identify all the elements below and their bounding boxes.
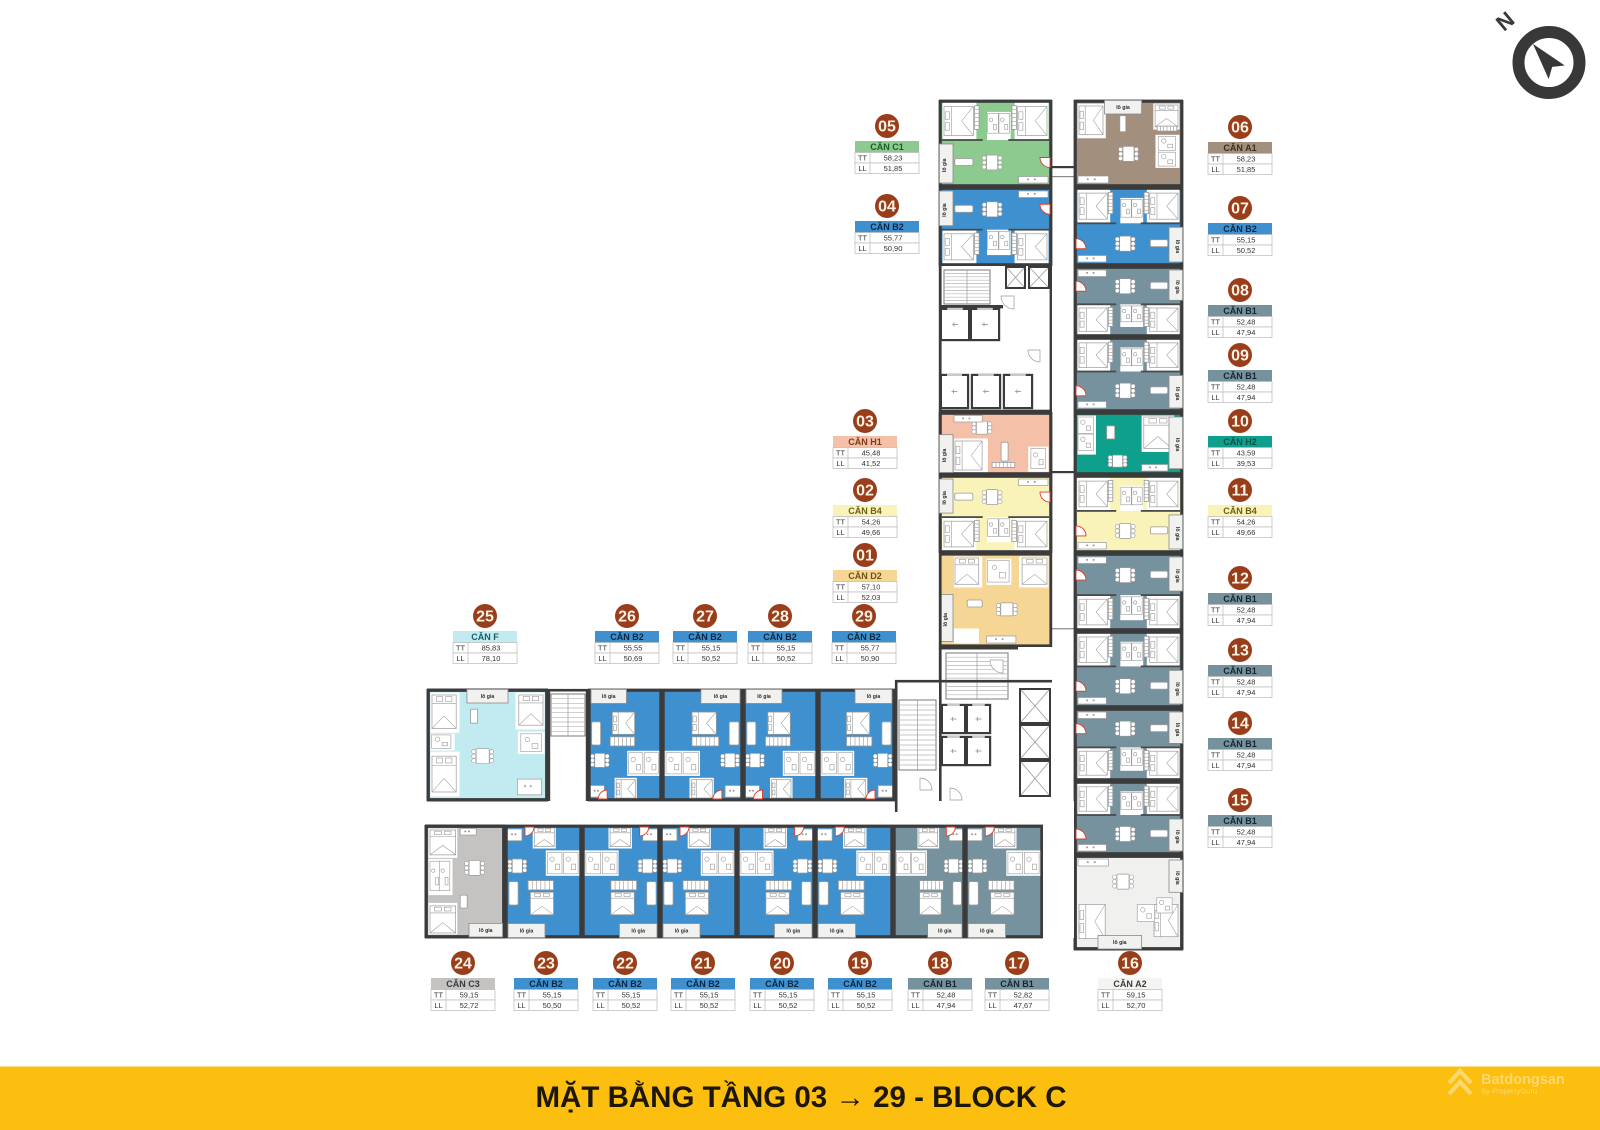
svg-text:49,66: 49,66 [862, 528, 881, 537]
svg-text:47,94: 47,94 [937, 1001, 956, 1010]
svg-text:CĂN B2: CĂN B2 [870, 222, 904, 232]
svg-text:47,94: 47,94 [1237, 328, 1256, 337]
svg-text:CĂN B4: CĂN B4 [848, 506, 882, 516]
svg-text:LL: LL [836, 593, 844, 602]
svg-text:lô gia: lô gia [1174, 280, 1180, 294]
svg-text:CĂN B2: CĂN B2 [688, 632, 722, 642]
svg-text:85,83: 85,83 [482, 644, 501, 653]
svg-text:24: 24 [454, 956, 472, 973]
svg-text:TT: TT [831, 991, 841, 1000]
svg-text:54,26: 54,26 [862, 518, 881, 527]
svg-text:50,52: 50,52 [777, 654, 796, 663]
svg-text:TT: TT [434, 991, 444, 1000]
svg-text:52,48: 52,48 [1237, 751, 1256, 760]
svg-text:lô gia: lô gia [675, 928, 689, 934]
svg-text:CĂN B2: CĂN B2 [610, 632, 644, 642]
svg-text:CĂN B2: CĂN B2 [843, 979, 877, 989]
svg-text:LL: LL [751, 654, 759, 663]
svg-text:CĂN B1: CĂN B1 [1223, 594, 1257, 604]
svg-text:LL: LL [858, 164, 866, 173]
svg-text:lô gia: lô gia [1174, 871, 1180, 885]
svg-text:52,48: 52,48 [1237, 678, 1256, 687]
svg-text:59,15: 59,15 [1127, 991, 1146, 1000]
svg-text:TT: TT [596, 991, 606, 1000]
svg-text:TT: TT [753, 991, 763, 1000]
svg-text:CĂN C3: CĂN C3 [446, 979, 480, 989]
svg-text:25: 25 [476, 609, 494, 626]
svg-text:lô gia: lô gia [1116, 105, 1130, 111]
svg-text:CĂN B2: CĂN B2 [763, 632, 797, 642]
svg-text:13: 13 [1231, 643, 1249, 660]
svg-text:02: 02 [856, 483, 874, 500]
svg-text:50,52: 50,52 [1237, 246, 1256, 255]
svg-text:TT: TT [1101, 991, 1111, 1000]
svg-text:22: 22 [616, 956, 634, 973]
svg-text:LL: LL [835, 654, 843, 663]
svg-text:lô gia: lô gia [1174, 723, 1180, 737]
svg-text:55,77: 55,77 [861, 644, 880, 653]
svg-text:21: 21 [694, 956, 712, 973]
svg-text:lô gia: lô gia [1174, 387, 1180, 401]
svg-text:LL: LL [858, 244, 866, 253]
svg-text:TT: TT [517, 991, 527, 1000]
svg-text:lô gia: lô gia [867, 694, 881, 700]
svg-text:LL: LL [1211, 616, 1219, 625]
svg-text:lô gia: lô gia [1174, 240, 1180, 254]
svg-text:06: 06 [1231, 120, 1249, 137]
svg-text:LL: LL [1211, 528, 1219, 537]
svg-text:lô gia: lô gia [980, 928, 994, 934]
svg-text:TT: TT [1211, 449, 1221, 458]
svg-text:09: 09 [1231, 348, 1249, 365]
svg-text:lô gia: lô gia [942, 491, 948, 505]
svg-text:TT: TT [911, 991, 921, 1000]
svg-text:52,82: 52,82 [1014, 991, 1033, 1000]
svg-text:LL: LL [988, 1001, 996, 1010]
svg-text:47,94: 47,94 [1237, 688, 1256, 697]
svg-text:47,94: 47,94 [1237, 761, 1256, 770]
svg-text:47,94: 47,94 [1237, 616, 1256, 625]
svg-text:CĂN B1: CĂN B1 [1223, 666, 1257, 676]
svg-text:55,15: 55,15 [857, 991, 876, 1000]
svg-text:50,52: 50,52 [702, 654, 721, 663]
svg-text:23: 23 [537, 956, 555, 973]
svg-text:29: 29 [855, 609, 873, 626]
svg-text:52,48: 52,48 [1237, 828, 1256, 837]
svg-text:lô gia: lô gia [602, 694, 616, 700]
svg-text:47,67: 47,67 [1014, 1001, 1033, 1010]
svg-text:lô gia: lô gia [714, 694, 728, 700]
svg-text:LL: LL [836, 528, 844, 537]
svg-text:lô gia: lô gia [1174, 682, 1180, 696]
svg-text:CĂN B1: CĂN B1 [1223, 306, 1257, 316]
svg-text:39,53: 39,53 [1237, 459, 1256, 468]
svg-text:CĂN F: CĂN F [471, 632, 499, 642]
svg-text:10: 10 [1231, 414, 1249, 431]
svg-text:CĂN B2: CĂN B2 [529, 979, 563, 989]
svg-text:lô gia: lô gia [1174, 569, 1180, 583]
svg-text:MẶT BẰNG TẦNG 03 → 29 - BLOCK: MẶT BẰNG TẦNG 03 → 29 - BLOCK C [535, 1080, 1066, 1114]
svg-text:CĂN B1: CĂN B1 [1223, 739, 1257, 749]
svg-text:55,15: 55,15 [1237, 236, 1256, 245]
svg-text:19: 19 [851, 956, 869, 973]
svg-text:57,10: 57,10 [862, 583, 881, 592]
svg-text:TT: TT [1211, 518, 1221, 527]
svg-text:54,26: 54,26 [1237, 518, 1256, 527]
svg-text:LL: LL [517, 1001, 525, 1010]
svg-text:05: 05 [878, 119, 896, 136]
svg-text:50,69: 50,69 [624, 654, 643, 663]
svg-text:55,15: 55,15 [702, 644, 721, 653]
svg-text:CĂN B4: CĂN B4 [1223, 506, 1257, 516]
svg-text:55,15: 55,15 [543, 991, 562, 1000]
svg-text:LL: LL [1211, 688, 1219, 697]
svg-text:12: 12 [1231, 571, 1249, 588]
svg-text:78,10: 78,10 [482, 654, 501, 663]
svg-text:TT: TT [1211, 155, 1221, 164]
svg-text:07: 07 [1231, 201, 1249, 218]
svg-text:CĂN A2: CĂN A2 [1113, 979, 1146, 989]
svg-text:55,15: 55,15 [779, 991, 798, 1000]
svg-text:59,15: 59,15 [460, 991, 479, 1000]
svg-text:52,48: 52,48 [1237, 606, 1256, 615]
svg-text:TT: TT [836, 583, 846, 592]
svg-text:CĂN B1: CĂN B1 [1223, 371, 1257, 381]
svg-text:lô gia: lô gia [938, 928, 952, 934]
svg-text:LL: LL [1211, 838, 1219, 847]
svg-text:LL: LL [1211, 328, 1219, 337]
svg-text:lô gia: lô gia [942, 449, 948, 463]
svg-text:LL: LL [1211, 393, 1219, 402]
svg-text:43,59: 43,59 [1237, 449, 1256, 458]
svg-text:TT: TT [1211, 318, 1221, 327]
svg-text:lô gia: lô gia [942, 158, 948, 172]
svg-text:50,50: 50,50 [543, 1001, 562, 1010]
svg-text:CĂN B1: CĂN B1 [923, 979, 957, 989]
svg-text:LL: LL [598, 654, 606, 663]
svg-text:55,77: 55,77 [884, 234, 903, 243]
svg-text:55,15: 55,15 [777, 644, 796, 653]
svg-text:lô gia: lô gia [1174, 438, 1180, 452]
svg-text:TT: TT [858, 154, 868, 163]
svg-text:TT: TT [676, 644, 686, 653]
svg-text:lô gia: lô gia [1174, 527, 1180, 541]
svg-text:LL: LL [831, 1001, 839, 1010]
svg-text:55,55: 55,55 [624, 644, 643, 653]
svg-text:CĂN B2: CĂN B2 [847, 632, 881, 642]
svg-text:26: 26 [618, 609, 636, 626]
svg-text:50,52: 50,52 [857, 1001, 876, 1010]
svg-text:52,70: 52,70 [1127, 1001, 1146, 1010]
svg-text:LL: LL [676, 654, 684, 663]
svg-text:41,52: 41,52 [862, 459, 881, 468]
svg-text:52,72: 52,72 [460, 1001, 479, 1010]
svg-text:16: 16 [1121, 956, 1139, 973]
svg-text:TT: TT [1211, 606, 1221, 615]
svg-text:TT: TT [1211, 383, 1221, 392]
svg-text:52,03: 52,03 [862, 593, 881, 602]
svg-text:LL: LL [1211, 246, 1219, 255]
svg-text:CĂN D2: CĂN D2 [848, 571, 882, 581]
svg-text:lô gia: lô gia [942, 203, 948, 217]
svg-text:lô gia: lô gia [631, 928, 645, 934]
svg-text:20: 20 [773, 956, 791, 973]
svg-text:50,52: 50,52 [622, 1001, 641, 1010]
svg-text:lô gia: lô gia [481, 694, 495, 700]
svg-text:LL: LL [753, 1001, 761, 1010]
svg-text:CĂN B2: CĂN B2 [765, 979, 799, 989]
svg-text:CĂN C1: CĂN C1 [870, 142, 904, 152]
svg-text:52,48: 52,48 [1237, 318, 1256, 327]
svg-text:50,90: 50,90 [861, 654, 880, 663]
svg-text:lô gia: lô gia [786, 928, 800, 934]
svg-text:50,52: 50,52 [700, 1001, 719, 1010]
svg-text:11: 11 [1232, 483, 1249, 500]
svg-text:TT: TT [1211, 236, 1221, 245]
svg-text:04: 04 [878, 199, 896, 216]
svg-text:lô gia: lô gia [1174, 830, 1180, 844]
svg-text:28: 28 [771, 609, 789, 626]
svg-text:CĂN B1: CĂN B1 [1000, 979, 1034, 989]
svg-text:TT: TT [674, 991, 684, 1000]
svg-text:27: 27 [696, 609, 714, 626]
svg-text:lô gia: lô gia [943, 613, 949, 627]
svg-text:TT: TT [1211, 751, 1221, 760]
svg-text:LL: LL [596, 1001, 604, 1010]
svg-text:CĂN H1: CĂN H1 [848, 437, 882, 447]
svg-text:TT: TT [598, 644, 608, 653]
svg-text:lô gia: lô gia [479, 928, 493, 934]
svg-text:LL: LL [456, 654, 464, 663]
svg-text:CĂN B2: CĂN B2 [608, 979, 642, 989]
svg-text:TT: TT [835, 644, 845, 653]
svg-text:TT: TT [858, 234, 868, 243]
svg-text:CĂN H2: CĂN H2 [1223, 437, 1257, 447]
svg-text:CĂN A1: CĂN A1 [1223, 143, 1256, 153]
svg-text:47,94: 47,94 [1237, 838, 1256, 847]
svg-text:52,48: 52,48 [1237, 383, 1256, 392]
svg-text:55,15: 55,15 [622, 991, 641, 1000]
svg-text:01: 01 [856, 548, 874, 565]
svg-text:15: 15 [1231, 793, 1249, 810]
svg-text:lô gia: lô gia [830, 928, 844, 934]
svg-text:CĂN B2: CĂN B2 [1223, 224, 1257, 234]
svg-text:58,23: 58,23 [884, 154, 903, 163]
svg-text:TT: TT [988, 991, 998, 1000]
svg-text:LL: LL [1211, 761, 1219, 770]
svg-text:52,48: 52,48 [937, 991, 956, 1000]
svg-text:LL: LL [1101, 1001, 1109, 1010]
svg-text:LL: LL [674, 1001, 682, 1010]
svg-text:LL: LL [434, 1001, 442, 1010]
svg-text:50,90: 50,90 [884, 244, 903, 253]
svg-text:49,66: 49,66 [1237, 528, 1256, 537]
svg-text:45,48: 45,48 [862, 449, 881, 458]
svg-text:lô gia: lô gia [520, 928, 534, 934]
svg-text:by PropertyGuru: by PropertyGuru [1482, 1087, 1537, 1096]
svg-text:LL: LL [1211, 165, 1219, 174]
svg-text:TT: TT [1211, 828, 1221, 837]
svg-text:TT: TT [751, 644, 761, 653]
svg-text:TT: TT [1211, 678, 1221, 687]
svg-text:LL: LL [911, 1001, 919, 1010]
svg-text:51,85: 51,85 [1237, 165, 1256, 174]
svg-text:TT: TT [836, 449, 846, 458]
svg-text:CĂN B2: CĂN B2 [686, 979, 720, 989]
svg-text:51,85: 51,85 [884, 164, 903, 173]
svg-text:LL: LL [836, 459, 844, 468]
svg-text:14: 14 [1231, 716, 1249, 733]
svg-text:lô gia: lô gia [757, 694, 771, 700]
svg-text:47,94: 47,94 [1237, 393, 1256, 402]
svg-text:55,15: 55,15 [700, 991, 719, 1000]
svg-text:lô gia: lô gia [1113, 940, 1127, 946]
svg-text:08: 08 [1231, 283, 1249, 300]
svg-text:50,52: 50,52 [779, 1001, 798, 1010]
svg-text:58,23: 58,23 [1237, 155, 1256, 164]
svg-text:18: 18 [931, 956, 949, 973]
svg-text:17: 17 [1008, 956, 1026, 973]
svg-text:LL: LL [1211, 459, 1219, 468]
svg-text:03: 03 [856, 414, 874, 431]
svg-text:CĂN B1: CĂN B1 [1223, 816, 1257, 826]
svg-text:TT: TT [456, 644, 466, 653]
svg-text:TT: TT [836, 518, 846, 527]
